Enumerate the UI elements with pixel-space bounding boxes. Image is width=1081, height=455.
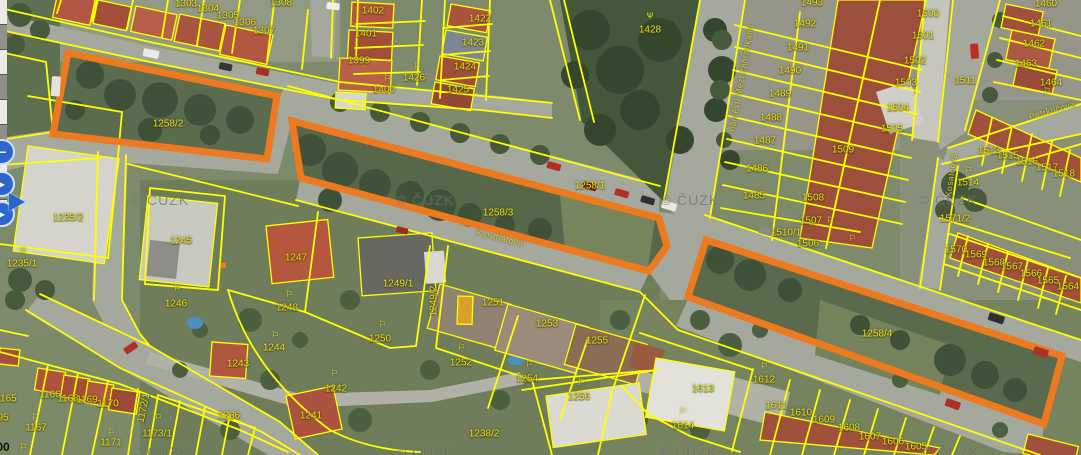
pan-right-arrow-icon[interactable] xyxy=(9,193,25,211)
aerial-map-canvas[interactable] xyxy=(0,0,1081,455)
vehicle xyxy=(970,43,979,59)
vehicle xyxy=(326,2,340,10)
vehicle xyxy=(51,76,61,97)
swimming-pool xyxy=(187,317,203,329)
cadastral-map-viewport[interactable]: 1303130413051306130713081402140113991400… xyxy=(0,0,1081,455)
highlight-vertex-dot xyxy=(221,263,226,268)
